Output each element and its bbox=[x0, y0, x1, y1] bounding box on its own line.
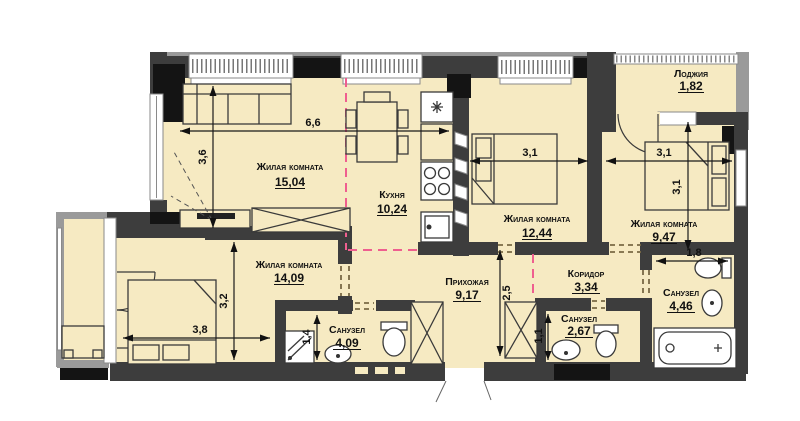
dim-living3-depth: 3,1 bbox=[671, 179, 683, 194]
label-corridor-area: 3,34 bbox=[574, 280, 598, 294]
window-loggia-glazing bbox=[614, 54, 738, 64]
window-kitchen-top bbox=[341, 54, 422, 84]
label-bath1-area: 4,09 bbox=[335, 336, 359, 350]
dim-living4-depth: 3,2 bbox=[218, 293, 230, 308]
label-kitchen-area: 10,24 bbox=[377, 202, 407, 216]
furniture-living4 bbox=[128, 280, 216, 364]
label-living2-name: Жилая комната bbox=[503, 213, 571, 225]
label-loggia-area: 1,82 bbox=[679, 79, 703, 93]
label-corridor-name: Коридор bbox=[568, 268, 605, 280]
window-living2-top bbox=[498, 56, 573, 84]
label-living3-area: 9,47 bbox=[652, 230, 676, 244]
floor-plan: Жилая комната 15,04 Кухня 10,24 Жилая ко… bbox=[0, 0, 800, 421]
window-living1-left bbox=[150, 94, 163, 200]
label-living4-name: Жилая комната bbox=[255, 259, 323, 271]
label-living4-area: 14,09 bbox=[274, 271, 304, 285]
toilet-bath2 bbox=[596, 331, 616, 357]
label-kitchen-name: Кухня bbox=[379, 189, 405, 201]
label-bath2-area: 2,67 bbox=[567, 324, 591, 338]
toilet-bath1 bbox=[383, 328, 405, 356]
dim-bath2-depth: 1,1 bbox=[533, 328, 545, 343]
floor-plan-canvas: Жилая комната 15,04 Кухня 10,24 Жилая ко… bbox=[0, 0, 800, 421]
furniture-living2 bbox=[472, 134, 557, 204]
dim-living4-width: 3,8 bbox=[192, 324, 207, 336]
dim-living3-width: 3,1 bbox=[656, 147, 671, 159]
dim-bath1-shower: 1,4 bbox=[301, 328, 313, 344]
label-bath3-area: 4,46 bbox=[669, 299, 693, 313]
label-hall-area: 9,17 bbox=[455, 288, 479, 302]
label-living3-name: Жилая комната bbox=[630, 218, 698, 230]
dim-living2-width: 3,1 bbox=[522, 147, 537, 159]
window-living1-top bbox=[189, 54, 293, 84]
dim-living-width: 6,6 bbox=[305, 117, 320, 129]
label-bath1-name: Санузел bbox=[329, 324, 365, 336]
sink-bath2 bbox=[552, 340, 580, 360]
stove bbox=[421, 162, 453, 200]
label-living2-area: 12,44 bbox=[522, 226, 552, 240]
window-loggia-room bbox=[658, 112, 696, 125]
window-living3-right bbox=[736, 150, 746, 206]
dining-table bbox=[357, 102, 397, 162]
label-bath3-name: Санузел bbox=[663, 287, 699, 299]
dim-bath3-width: 1,8 bbox=[686, 247, 701, 259]
label-living1-name: Жилая комната bbox=[256, 161, 324, 173]
label-living1-area: 15,04 bbox=[275, 175, 305, 189]
door-entrance bbox=[436, 381, 491, 402]
label-hall-name: Прихожая bbox=[445, 276, 489, 288]
furniture-balcony bbox=[62, 326, 104, 358]
dim-living-depth: 3,6 bbox=[197, 149, 209, 164]
dim-hall-depth: 2,5 bbox=[501, 285, 513, 300]
